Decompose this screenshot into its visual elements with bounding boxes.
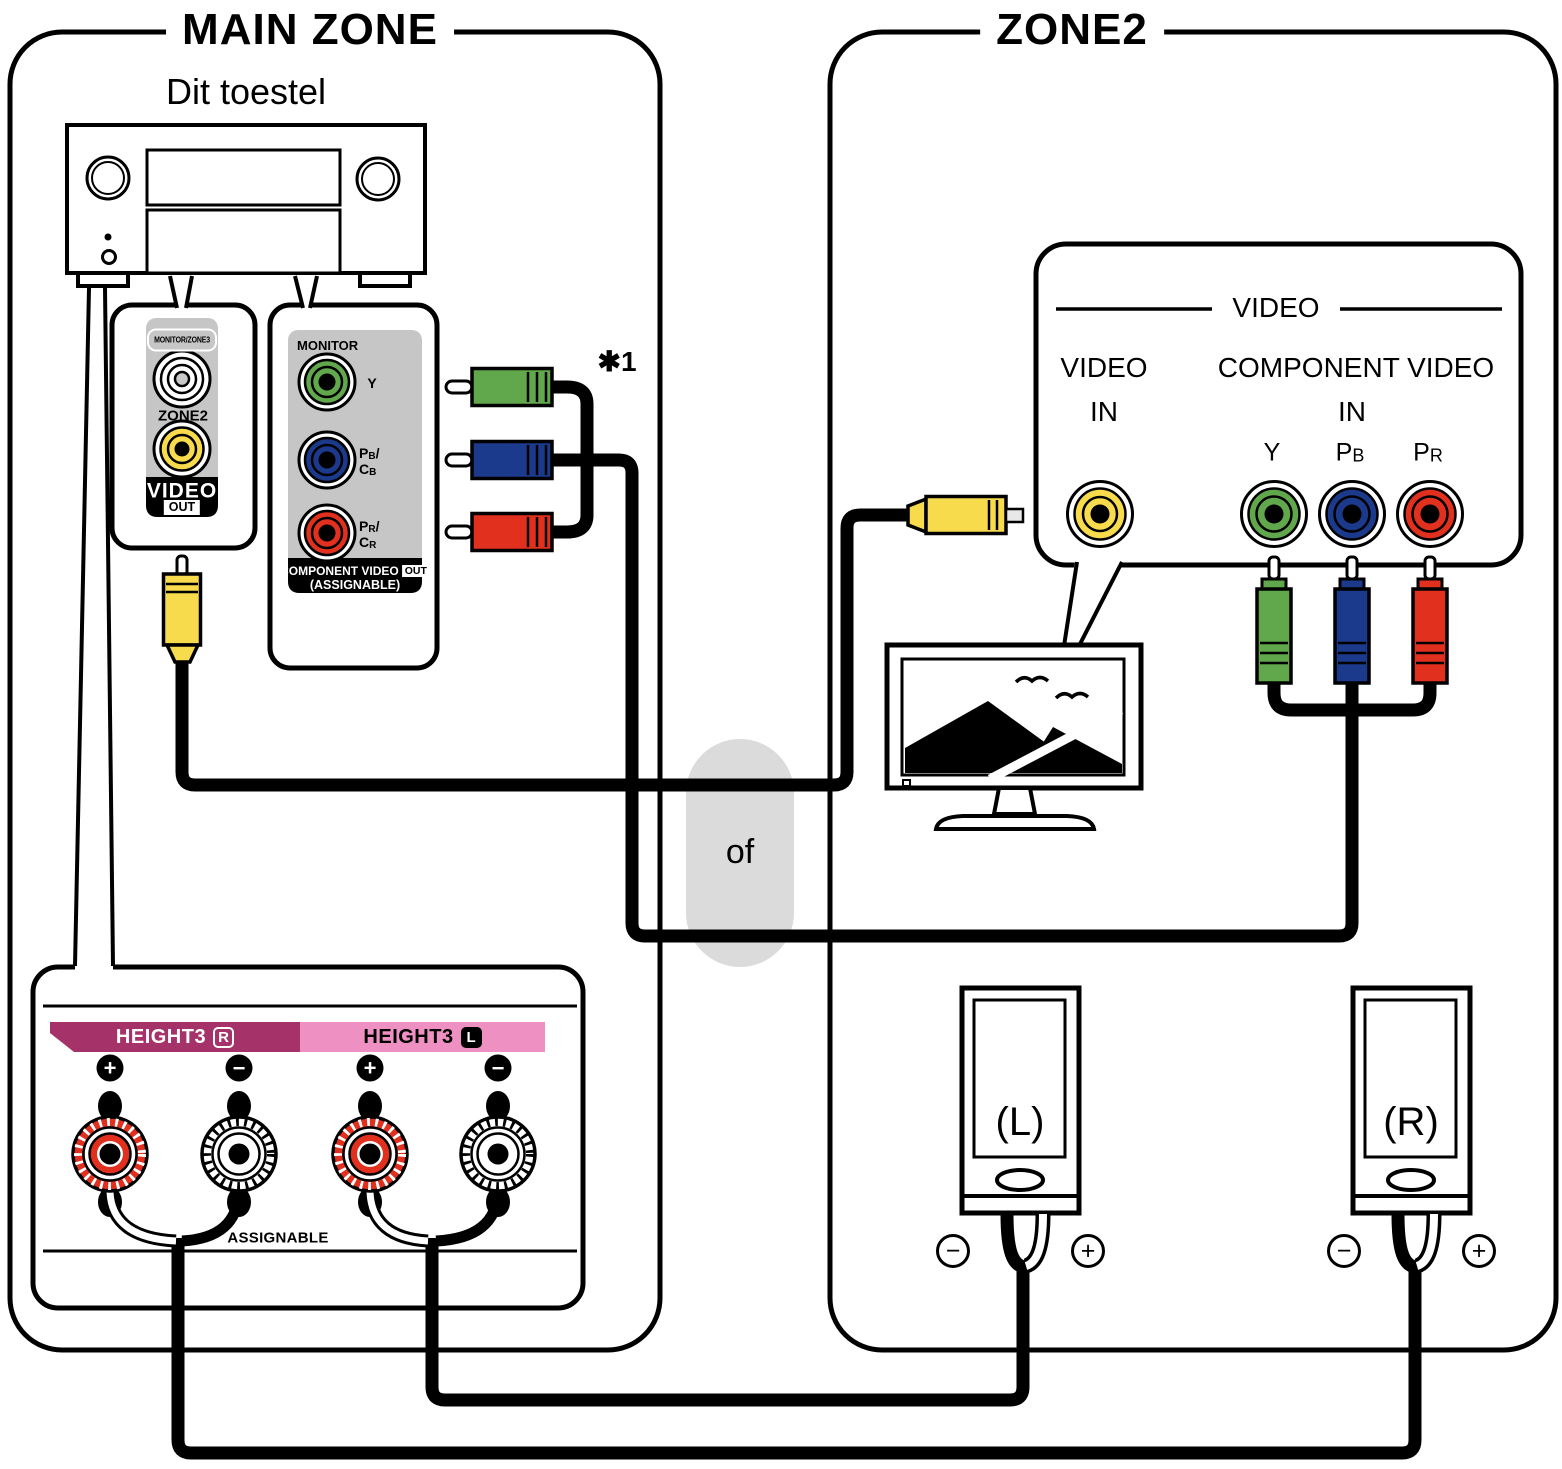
l-badge: L [461, 1027, 482, 1048]
video-out-badge: OUT [164, 499, 200, 515]
zone2-pr-label: PR [1413, 441, 1443, 466]
receiver-power-button [103, 251, 116, 264]
component-pb-jack [299, 432, 355, 488]
tv-stand-neck [994, 788, 1035, 814]
zone2-video-label: VIDEO [1060, 354, 1147, 382]
yellow-plug-zone2 [908, 497, 1023, 534]
assignable-footer: (ASSIGNABLE) [310, 579, 400, 592]
speaker-port [1388, 1170, 1434, 1190]
cable-note-1: ✱1 [597, 348, 636, 376]
speaker-right-label: (R) [1383, 1102, 1439, 1142]
speaker-right-plus: + [1462, 1234, 1496, 1268]
zone2-panel-title: VIDEO [1220, 294, 1331, 322]
speaker-port [997, 1170, 1043, 1190]
receiver-front-panel [147, 210, 340, 273]
zone2-title: ZONE2 [980, 8, 1164, 52]
zone2-video-out-jack [154, 421, 210, 477]
component-y-jack [299, 354, 355, 410]
tv-stand-base [936, 816, 1094, 829]
post-plus-sign: + [97, 1055, 124, 1082]
zone2-pb-jack [1320, 482, 1385, 547]
monitor-zone3-label: MONITOR/ZONE3 [147, 329, 217, 352]
zone2-pb-label: PB [1336, 441, 1365, 466]
speaker-right-minus: − [1327, 1234, 1361, 1268]
post-minus-sign: − [485, 1055, 512, 1082]
zone2-jack-label: ZONE2 [158, 409, 208, 424]
component-out-footer: COMPONENT VIDEO OUT [280, 565, 430, 577]
receiver-led [105, 234, 112, 241]
zone2-video-in-jack [1068, 482, 1133, 547]
zone2-video-in-label: IN [1090, 398, 1118, 426]
height3-l-label: HEIGHT3 L [300, 1022, 545, 1052]
av-receiver [67, 125, 425, 286]
post-height3-r-plus [73, 1117, 147, 1191]
device-label: Dit toestel [166, 74, 326, 110]
height3-r-label: HEIGHT3 R [50, 1022, 300, 1052]
monitor-label: MONITOR [297, 339, 358, 352]
r-badge: R [213, 1027, 234, 1048]
assignable-label: ASSIGNABLE [227, 1231, 328, 1246]
wiring-diagram: MAIN ZONE ZONE2 Dit toestel ✱1 of MONITO… [0, 0, 1562, 1469]
post-height3-l-plus [333, 1117, 407, 1191]
monitor-zone3-jack [154, 351, 210, 407]
or-label: of [726, 835, 754, 869]
zone2-component-in-label: IN [1338, 398, 1366, 426]
receiver-display [147, 150, 340, 205]
speaker-left-minus: − [936, 1234, 970, 1268]
post-plus-sign: + [357, 1055, 384, 1082]
component-pr-jack [299, 505, 355, 561]
main-zone-title: MAIN ZONE [166, 8, 454, 52]
zone2-y-label: Y [1264, 441, 1281, 466]
pr-jack-label: PR/ [359, 519, 379, 535]
zone2-y-jack [1242, 482, 1307, 547]
zone2-component-label: COMPONENT VIDEO [1218, 354, 1494, 382]
cb-jack-label: CB [359, 462, 376, 478]
post-minus-sign: − [226, 1055, 253, 1082]
speaker-left-label: (L) [996, 1102, 1045, 1142]
post-height3-r-minus [202, 1117, 276, 1191]
y-jack-label: Y [367, 376, 376, 390]
cr-jack-label: CR [359, 535, 376, 551]
speaker-left-plus: + [1071, 1234, 1105, 1268]
zone2-pr-jack [1398, 482, 1463, 547]
pb-jack-label: PB/ [359, 446, 379, 462]
post-height3-l-minus [461, 1117, 535, 1191]
